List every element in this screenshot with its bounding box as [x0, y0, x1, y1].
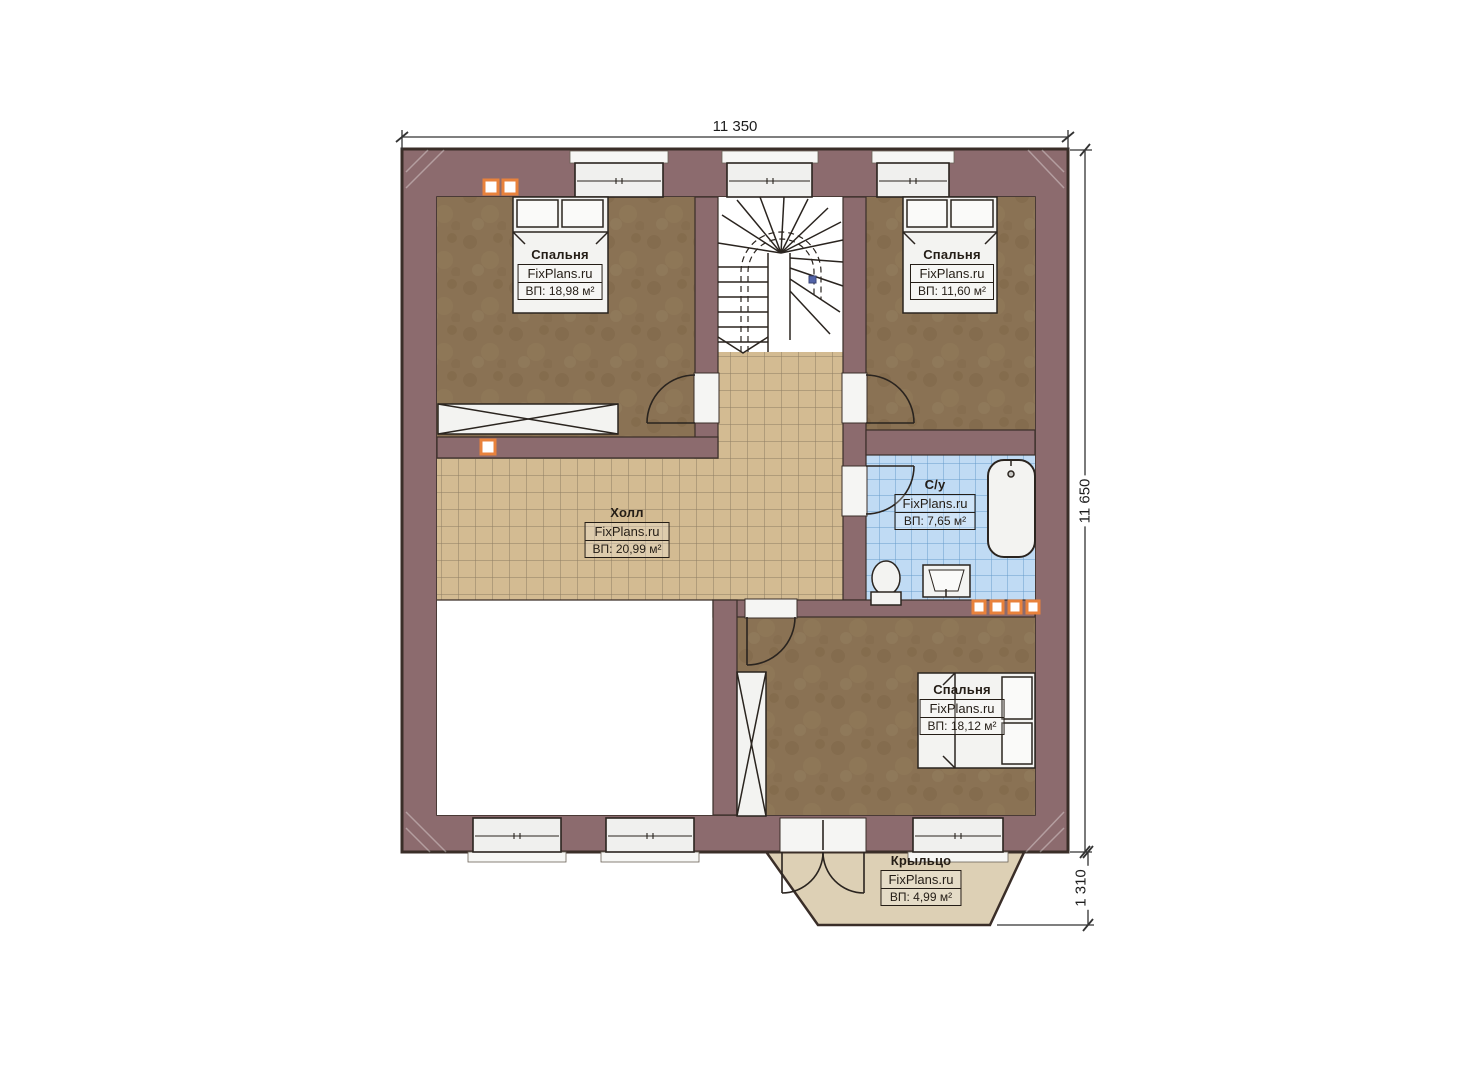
wardrobe-bottom [737, 672, 766, 816]
floor-plan-page: 11 350 11 650 1 310 Спальня FixPlans.ru … [0, 0, 1473, 1080]
watermark: FixPlans.ru [895, 495, 974, 513]
corridor-floor [718, 352, 843, 458]
open-room-floor [437, 600, 713, 815]
room-info-box: FixPlans.ru ВП: 11,60 м² [910, 264, 994, 300]
dimension-porch: 1 310 [1073, 866, 1090, 910]
room-area: ВП: 7,65 м² [895, 513, 974, 529]
room-info-box: FixPlans.ru ВП: 7,65 м² [894, 494, 975, 530]
bathtub [988, 460, 1035, 557]
sink [923, 565, 970, 597]
wardrobe-top-left [438, 404, 618, 434]
room-name: Спальня [518, 247, 603, 262]
room-info-box: FixPlans.ru ВП: 18,12 м² [920, 699, 1005, 735]
room-label-bathroom: С/у FixPlans.ru ВП: 7,65 м² [894, 477, 975, 530]
room-area: ВП: 20,99 м² [586, 541, 669, 557]
room-label-porch: Крыльцо FixPlans.ru ВП: 4,99 м² [880, 853, 961, 906]
watermark: FixPlans.ru [911, 265, 993, 283]
room-label-bedroom-bottom: Спальня FixPlans.ru ВП: 18,12 м² [920, 682, 1005, 735]
window-bottom-right [913, 818, 1003, 852]
window-top-left [575, 163, 663, 197]
room-area: ВП: 4,99 м² [881, 889, 960, 905]
window-top-right [877, 163, 949, 197]
room-area: ВП: 18,98 м² [519, 283, 602, 299]
room-area: ВП: 18,12 м² [921, 718, 1004, 734]
dimension-top: 11 350 [713, 118, 758, 135]
stairs-marker [809, 276, 816, 283]
toilet [871, 561, 901, 605]
watermark: FixPlans.ru [519, 265, 602, 283]
watermark: FixPlans.ru [921, 700, 1004, 718]
watermark: FixPlans.ru [586, 523, 669, 541]
window-bottom-left-2 [606, 818, 694, 852]
dimension-right: 11 650 [1077, 476, 1094, 527]
room-label-bedroom-top-right: Спальня FixPlans.ru ВП: 11,60 м² [910, 247, 994, 300]
room-info-box: FixPlans.ru ВП: 18,98 м² [518, 264, 603, 300]
door-opening-bedroom-bottom [745, 599, 797, 618]
room-name: Крыльцо [880, 853, 961, 868]
door-opening-bedroom-top-right [842, 373, 867, 423]
room-info-box: FixPlans.ru ВП: 4,99 м² [880, 870, 961, 906]
window-bottom-left-1 [473, 818, 561, 852]
door-opening-bedroom-top-left [694, 373, 719, 423]
room-area: ВП: 11,60 м² [911, 283, 993, 299]
room-name: Спальня [920, 682, 1005, 697]
room-name: Спальня [910, 247, 994, 262]
room-name: Холл [585, 505, 670, 520]
room-info-box: FixPlans.ru ВП: 20,99 м² [585, 522, 670, 558]
watermark: FixPlans.ru [881, 871, 960, 889]
room-label-bedroom-top-left: Спальня FixPlans.ru ВП: 18,98 м² [518, 247, 603, 300]
window-stairwell [727, 163, 812, 197]
floor-plan-drawing [0, 0, 1473, 1080]
door-opening-bathroom [842, 466, 867, 516]
room-name: С/у [894, 477, 975, 492]
room-label-hall: Холл FixPlans.ru ВП: 20,99 м² [585, 505, 670, 558]
